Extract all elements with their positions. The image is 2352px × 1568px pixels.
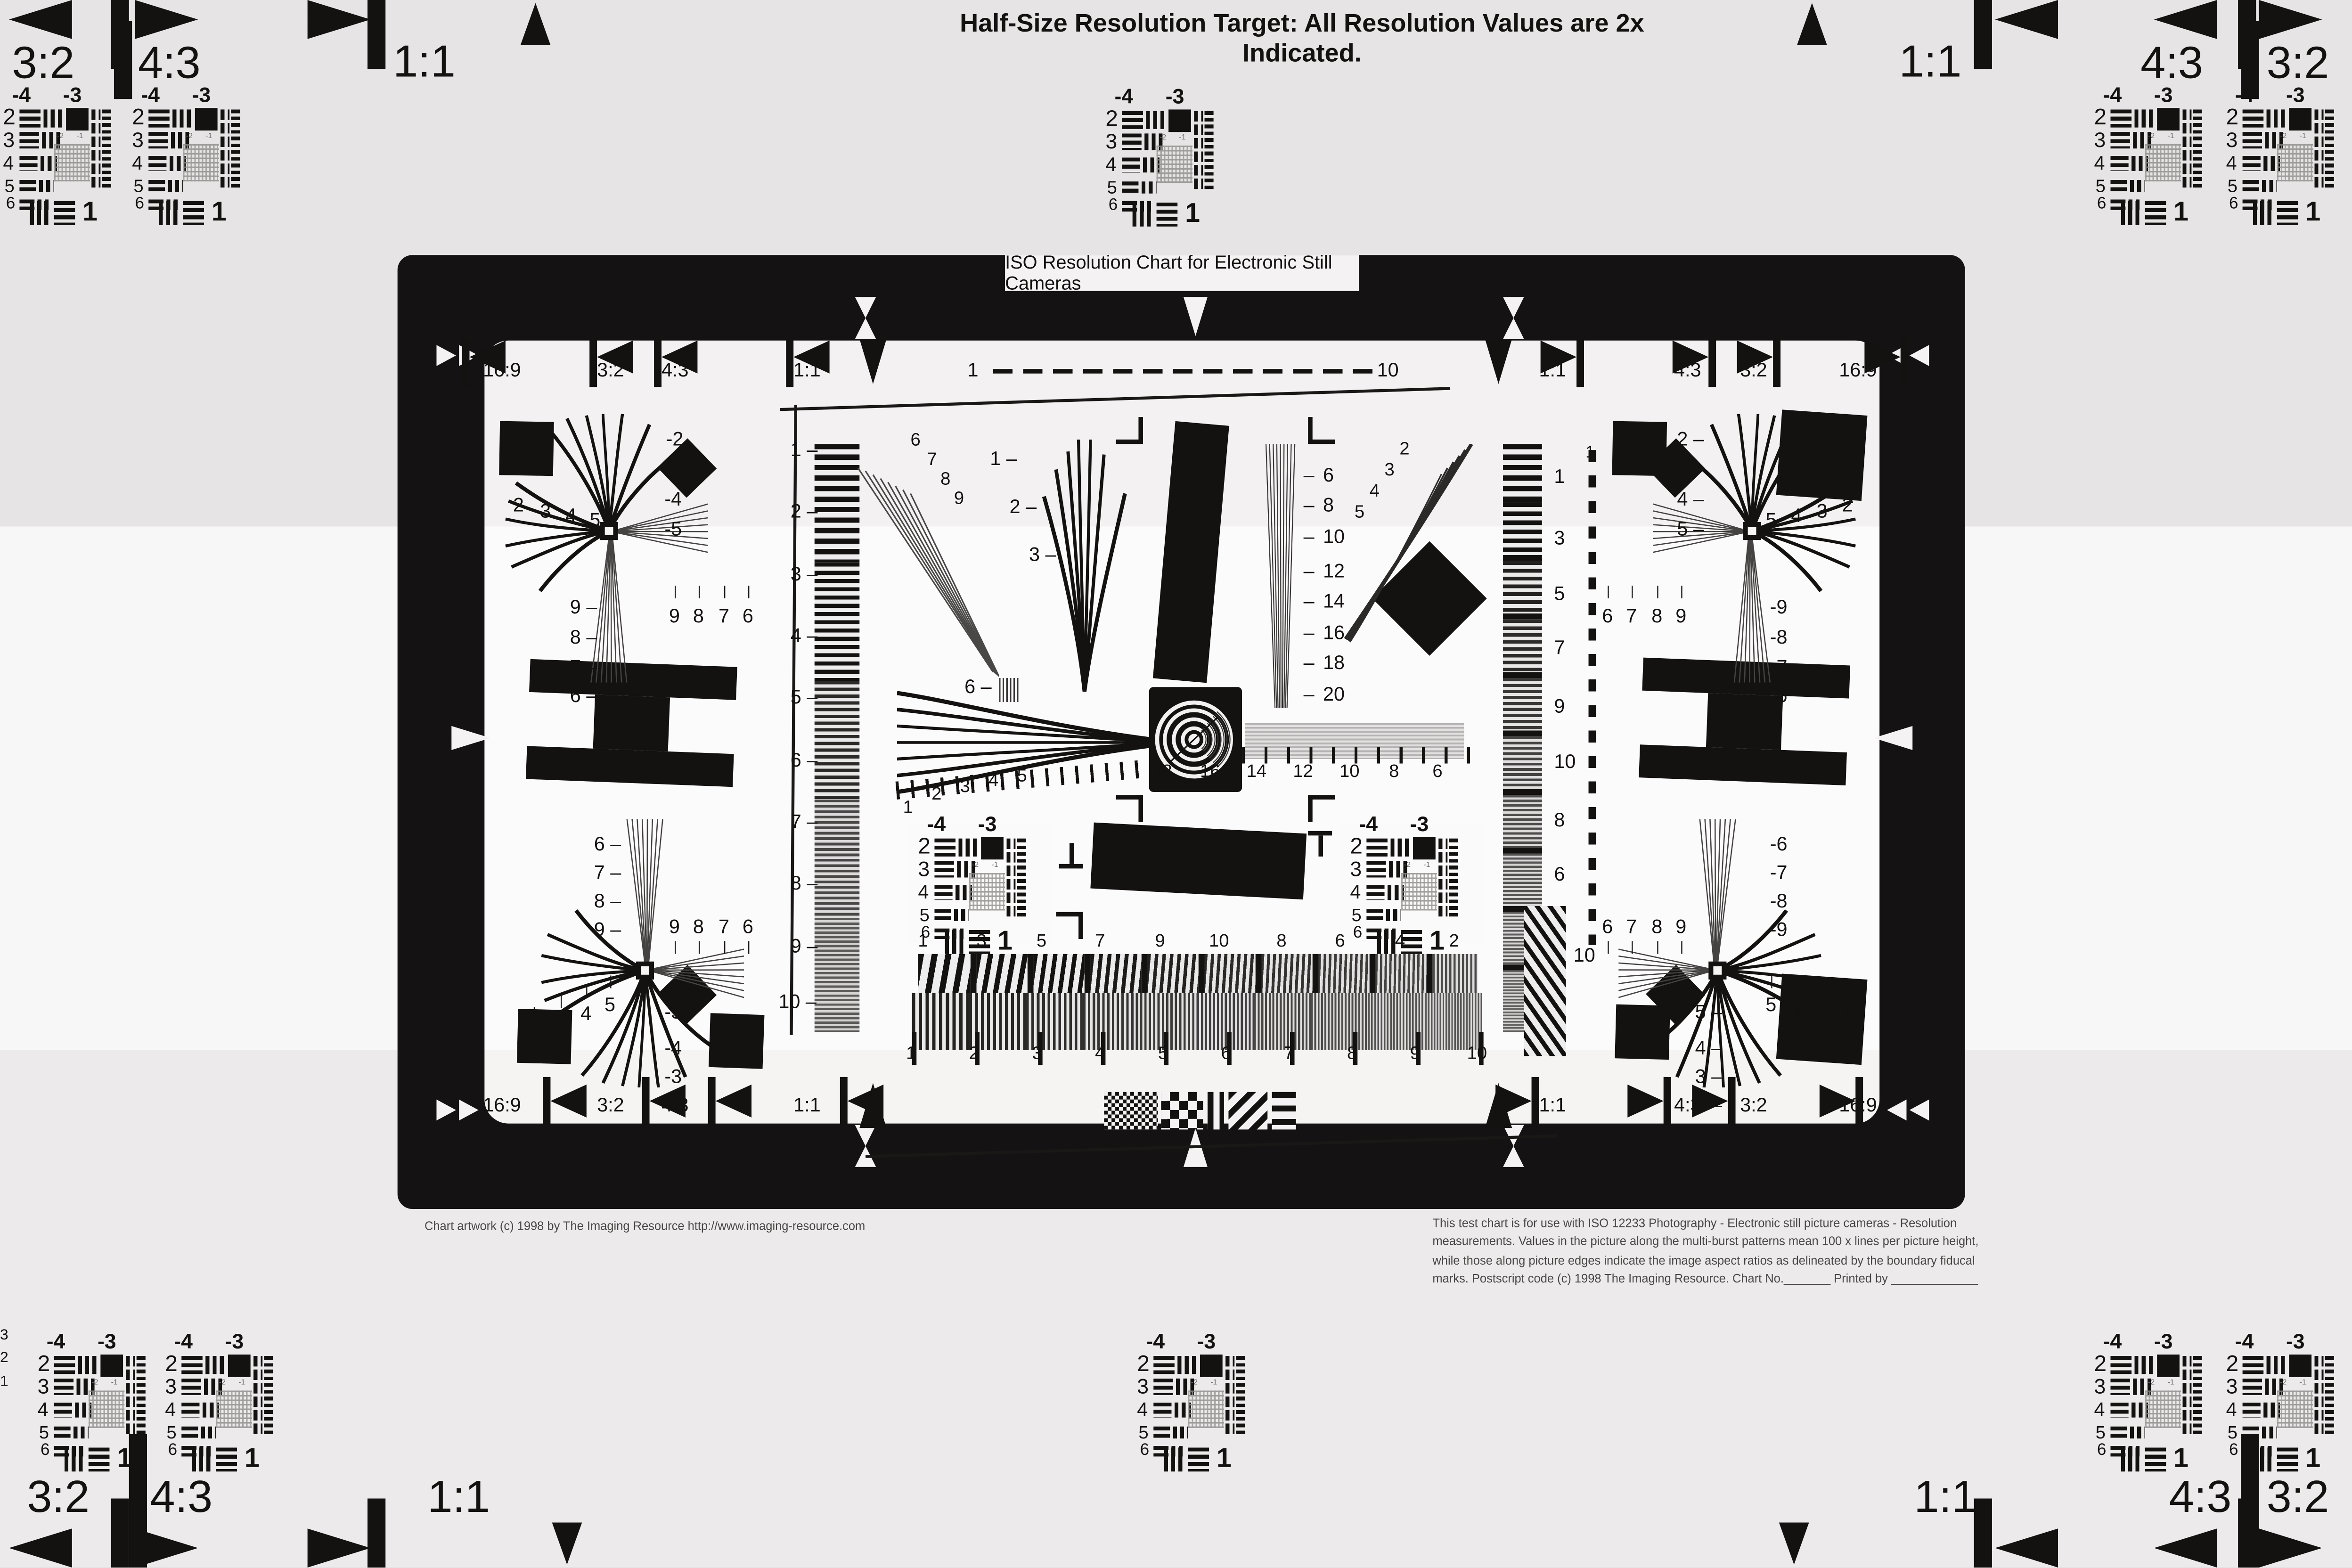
wedge-frequency-label: 9 <box>669 606 680 625</box>
hbar-pattern <box>137 1356 146 1366</box>
stop-label: -4 <box>141 84 160 105</box>
hbar-pattern <box>2325 109 2334 120</box>
nested-stop-label: -2 <box>186 133 193 141</box>
vbar-pattern <box>2314 137 2323 147</box>
scale-number: 18 <box>1323 653 1345 672</box>
hbar-pattern <box>231 123 240 133</box>
ruler-number: 2 – <box>791 501 818 520</box>
hbar-pattern <box>264 1423 273 1434</box>
hbar-pattern <box>2325 137 2334 147</box>
vbar-pattern <box>954 909 969 921</box>
burst-number: 9 <box>1410 1044 1420 1062</box>
hbar-pattern <box>934 861 954 877</box>
frame-bowtie <box>855 1125 876 1146</box>
edge-label: 3:2 <box>1740 1095 1767 1114</box>
vbar-pattern <box>2182 1423 2191 1434</box>
diagonal-stripes-mark <box>1228 1092 1267 1130</box>
wedge-frequency-label: -9 <box>1770 920 1788 939</box>
row-number: 4 <box>1350 882 1361 901</box>
hbar-pattern <box>148 156 166 171</box>
vbar-pattern <box>2314 1370 2323 1380</box>
aspect-ratio-label: 1:1 <box>1914 1476 1976 1521</box>
row-number: 4 <box>38 1399 49 1419</box>
hbar-pattern <box>2110 1379 2130 1395</box>
hbar-pattern <box>1366 909 1383 921</box>
vbar-pattern <box>2314 1410 2323 1421</box>
fine-checkerboard <box>1104 1092 1158 1130</box>
partial-glyph: 2 <box>0 1352 8 1367</box>
vbar-pattern <box>1225 1370 1234 1380</box>
wedge-frequency-label: -9 <box>1770 597 1788 616</box>
down-triangle-fiducial <box>552 1522 582 1564</box>
frame-bowtie <box>1503 1146 1524 1167</box>
vbar-pattern <box>1006 879 1015 890</box>
vbar-pattern <box>2253 201 2272 225</box>
vbar-pattern <box>1438 866 1447 876</box>
vbar-pattern <box>1142 181 1157 193</box>
edge-marker-triangle <box>1495 1085 1531 1118</box>
fiducial-triangle <box>308 1528 371 1568</box>
row-number: 3 <box>2094 129 2106 150</box>
mini-resolution-chart: -4-3 23456 -2-1 1 <box>2094 1355 2214 1475</box>
row-number: 6 <box>6 196 16 213</box>
wedge-frequency-label: 3 <box>1816 1014 1827 1033</box>
row-number: 5 <box>39 1423 49 1441</box>
vbar-pattern <box>2182 163 2191 174</box>
nested-stop-label: -2 <box>2280 133 2287 141</box>
big-one-label: 1 <box>1185 198 1200 229</box>
vbar-pattern <box>1438 839 1447 849</box>
hbar-pattern <box>1017 839 1026 849</box>
frame-bowtie <box>1503 318 1524 339</box>
scale-number: 6 <box>1432 762 1442 780</box>
stop-label: -4 <box>47 1331 65 1352</box>
footer-line: marks. Postscript code (c) 1998 The Imag… <box>1432 1271 1987 1289</box>
ruler-number: 2 – <box>1010 497 1037 516</box>
aspect-ratio-label: 3:2 <box>12 42 74 87</box>
vbar-pattern <box>2182 137 2191 147</box>
row-number: 2 <box>2226 1353 2239 1376</box>
aspect-ratio-label: 4:3 <box>2140 42 2203 87</box>
up-triangle-fiducial <box>521 3 551 45</box>
hbar-pattern <box>2325 1370 2334 1380</box>
hbar-pattern <box>102 137 111 147</box>
footer-line: measurements. Values in the picture alon… <box>1432 1233 1987 1252</box>
ruler-number: 9 – <box>791 936 818 955</box>
hbar-pattern <box>2193 1423 2202 1434</box>
corner-fiducial-triangle <box>2259 1528 2322 1568</box>
wedge-frequency-label: 8 – <box>570 627 597 646</box>
vbar-pattern <box>1194 111 1203 122</box>
wedge-frequency-label: | <box>697 585 701 599</box>
vbar-pattern <box>2130 1427 2145 1438</box>
scale-number: 8 <box>1323 495 1334 514</box>
wedge-frequency-label: 6 – <box>570 686 597 705</box>
edge-marker-bar <box>786 339 793 387</box>
edge-marker-triangle <box>550 1085 586 1118</box>
nested-stop-label: -1 <box>2167 1380 2174 1388</box>
wedge-frequency-label: 7 – <box>594 863 621 882</box>
hbar-pattern <box>1205 152 1214 162</box>
wedge-frequency-label: 3 <box>555 1014 566 1033</box>
vertical-bars-mark <box>1208 1092 1224 1130</box>
hbar-pattern <box>2325 163 2334 174</box>
ruler-number: 1 <box>1585 446 1595 462</box>
hbar-pattern <box>1122 111 1143 129</box>
frame-corner-arrow <box>436 1100 456 1121</box>
aspect-ratio-label: 4:3 <box>2169 1476 2232 1521</box>
ruler-number: 5 – <box>791 687 818 706</box>
ruler-number: 3 – <box>791 564 818 583</box>
row-number: 3 <box>38 1375 49 1396</box>
hbar-pattern <box>1153 1356 1175 1374</box>
wedge-frequency-label: 4 – <box>1677 489 1704 508</box>
edge-label: 1:1 <box>793 1095 821 1114</box>
row-number: 6 <box>41 1443 50 1460</box>
nested-stop-label: -1 <box>2300 133 2306 141</box>
vbar-pattern <box>1225 1383 1234 1393</box>
stop-label: -4 <box>12 84 31 105</box>
scale-number: – <box>1304 526 1315 546</box>
hbar-pattern <box>1236 1370 1245 1380</box>
hbar-pattern <box>2325 1423 2334 1434</box>
wedge-frequency-label: 5 <box>604 995 615 1014</box>
nested-mini-chart <box>1188 1390 1224 1428</box>
burst-number: 3 <box>1032 1044 1042 1062</box>
edge-label: 3:2 <box>597 360 624 379</box>
fiducial-triangle <box>1995 0 2058 39</box>
hbar-pattern <box>2193 1383 2202 1393</box>
scale-number: 2 <box>1399 440 1409 457</box>
row-number: 5 <box>2096 177 2106 195</box>
row-number: 5 <box>1107 179 1117 196</box>
left-multiburst-column <box>815 444 860 1032</box>
scale-number: – <box>1304 653 1315 672</box>
scale-number: 12 <box>1293 762 1313 780</box>
corner-bracket <box>1308 795 1335 822</box>
hbar-pattern <box>1366 861 1386 877</box>
edge-marker-bar <box>1708 339 1716 387</box>
row-number: 3 <box>918 858 930 879</box>
hbar-pattern <box>1017 866 1026 876</box>
partial-glyph: 1 <box>0 1375 8 1390</box>
hbar-pattern <box>264 1410 273 1421</box>
big-one-label: 1 <box>212 196 227 228</box>
wedge-frequency-label: -5 <box>664 519 682 539</box>
corner-bracket <box>1116 417 1143 444</box>
wedge-frequency-label: 7 <box>1626 916 1637 936</box>
hbar-pattern <box>1122 157 1140 172</box>
wedge-frequency-label: | <box>747 585 750 599</box>
resolution-chart-photo: Half-Size Resolution Target: All Resolut… <box>0 0 2352 1568</box>
edge-marker-bar <box>462 339 470 387</box>
frame-bowtie <box>1503 297 1524 318</box>
hbar-pattern <box>54 1427 71 1438</box>
center-vertical-wedge-fan <box>1041 440 1128 694</box>
hbar-pattern <box>2110 109 2131 127</box>
vbar-pattern <box>2134 109 2154 127</box>
edge-label: 4:3 <box>661 360 689 379</box>
hbar-pattern <box>1205 138 1214 148</box>
wedge-frequency-label: | <box>1680 585 1683 599</box>
vbar-pattern <box>2182 1356 2191 1366</box>
hbar-pattern <box>137 1383 146 1393</box>
nested-stop-label: -2 <box>2148 1380 2155 1388</box>
ruler-number: 6 – <box>791 750 818 769</box>
wedge-frequency-label: 8 <box>693 916 704 936</box>
vbar-pattern <box>1438 879 1447 890</box>
nested-mini-chart <box>54 144 90 182</box>
black-square <box>2157 108 2180 131</box>
vbar-pattern <box>126 1423 135 1434</box>
black-square <box>228 1355 251 1377</box>
hbar-pattern <box>54 1356 75 1374</box>
stop-label: -3 <box>2286 1331 2305 1352</box>
stop-label: -3 <box>2154 1331 2173 1352</box>
multiburst-band-coarse <box>918 954 1478 993</box>
big-one-label: 1 <box>2173 196 2189 228</box>
fiducial-bar <box>1974 0 1992 69</box>
wedge-frequency-label: | <box>1770 975 1773 988</box>
hbar-pattern <box>89 1447 110 1471</box>
wedge-cross-top-left <box>504 414 708 683</box>
scale-number: 14 <box>1247 762 1267 780</box>
vbar-pattern <box>2134 1356 2154 1374</box>
stop-label: -3 <box>63 84 82 105</box>
fiducial-bar <box>367 0 385 69</box>
row-number: 5 <box>166 1423 176 1441</box>
vbar-pattern <box>1225 1423 1234 1434</box>
vbar-pattern <box>1177 1356 1197 1374</box>
nested-mini-chart <box>216 1390 252 1428</box>
hbar-pattern <box>1449 852 1458 862</box>
vbar-pattern <box>2314 1423 2323 1434</box>
vbar-pattern <box>2182 109 2191 120</box>
vbar-pattern <box>126 1396 135 1407</box>
wedge-frequency-label: 7 <box>1626 606 1637 625</box>
edge-marker-bar <box>654 339 661 387</box>
corner-fiducial-triangle <box>9 0 72 39</box>
nested-stop-label: -1 <box>1210 1380 1217 1388</box>
wedge-frequency-label: | <box>1680 940 1683 954</box>
vbar-pattern <box>2130 180 2145 192</box>
row-number: 4 <box>2094 1399 2105 1419</box>
wedge-frequency-label: | <box>560 995 563 1008</box>
row-number: 2 <box>1350 835 1363 858</box>
fiducial-bar <box>1974 1499 1992 1568</box>
wedge-frequency-label: | <box>532 1006 536 1020</box>
hbar-pattern <box>2110 156 2128 171</box>
nested-stop-label: -1 <box>76 133 83 141</box>
row-number: 6 <box>1353 925 1363 942</box>
vbar-pattern <box>2182 177 2191 188</box>
stop-label: -4 <box>1114 85 1133 106</box>
vbar-pattern <box>126 1383 135 1393</box>
burst-number: 6 <box>1335 931 1345 949</box>
vbar-pattern <box>91 137 100 147</box>
hbar-pattern <box>2325 1410 2334 1421</box>
row-number: 5 <box>2228 177 2238 195</box>
row-number: 3 <box>3 129 15 150</box>
edge-label: 16:9 <box>483 1095 521 1114</box>
hbar-pattern <box>1449 839 1458 849</box>
hbar-pattern <box>1236 1423 1245 1434</box>
hbar-pattern <box>2325 123 2334 133</box>
hbar-pattern <box>2243 109 2264 127</box>
hbar-pattern <box>181 1403 199 1418</box>
vbar-pattern <box>65 1447 84 1471</box>
vbar-pattern <box>1438 852 1447 862</box>
diagonal-stripe-column <box>1524 906 1566 1056</box>
tee-mark <box>1308 831 1332 857</box>
vbar-pattern <box>1006 839 1015 849</box>
aspect-ratio-label: 1:1 <box>427 1476 490 1521</box>
hbar-pattern <box>102 123 111 133</box>
scale-number: – <box>1304 561 1315 580</box>
hbar-pattern <box>1205 165 1214 175</box>
fiducial-bar <box>367 1499 385 1568</box>
vbar-pattern <box>159 201 178 225</box>
frame-notch-top-center <box>1184 297 1208 336</box>
hbar-pattern <box>1122 133 1141 150</box>
nested-stop-label: -2 <box>219 1380 226 1388</box>
row-number: 5 <box>1138 1423 1148 1441</box>
hbar-pattern <box>231 163 240 174</box>
burst-number: 1 <box>906 1044 916 1062</box>
wedge-frequency-label: 6 <box>743 916 753 936</box>
frame-corner-arrow <box>436 345 456 366</box>
hbar-pattern <box>2325 177 2334 188</box>
hbar-pattern <box>264 1370 273 1380</box>
wedge-frequency-label: -5 <box>664 1002 682 1021</box>
hyperbolic-wedge-cross <box>1653 414 1857 683</box>
wedge-frequency-label: | <box>1656 940 1659 954</box>
wedge-frequency-label: -4 <box>664 489 682 508</box>
row-number: 2 <box>1137 1353 1150 1376</box>
aspect-ratio-label: 3:2 <box>2267 42 2329 87</box>
chart-title-tab: ISO Resolution Chart for Electronic Stil… <box>1005 255 1359 291</box>
wedge-frequency-label: -7 <box>1770 657 1788 676</box>
vbar-pattern <box>2182 1410 2191 1421</box>
wedge-frequency-label: -3 <box>666 459 684 478</box>
ruler-number: 8 – <box>791 873 818 892</box>
scale-number: 18 <box>1152 762 1172 780</box>
vbar-pattern <box>2267 1356 2286 1374</box>
hbar-pattern <box>1122 181 1138 193</box>
edge-marker-triangle <box>716 1085 751 1118</box>
vbar-pattern <box>2262 1427 2277 1438</box>
mini-resolution-chart: -4-3 23456 -2-1 1 <box>1105 109 1225 229</box>
frame-corner-arrow <box>459 1100 478 1121</box>
hbar-pattern <box>1236 1356 1245 1366</box>
burst-number: 5 <box>1158 1044 1168 1062</box>
scale-number: 5 <box>1017 767 1027 784</box>
hbar-pattern <box>102 177 111 188</box>
row-number: 3 <box>2094 1375 2106 1396</box>
big-one-label: 1 <box>1217 1443 1232 1475</box>
vbar-pattern <box>220 150 229 160</box>
wedge-frequency-label: 2 – <box>1695 1095 1723 1114</box>
stop-label: -3 <box>2154 84 2173 105</box>
dashed-scale-line <box>993 369 1377 373</box>
stop-label: -3 <box>1410 813 1429 834</box>
burst-number: 10 <box>1209 931 1229 949</box>
hbar-pattern <box>1205 111 1214 122</box>
burst-number: 10 <box>1467 1044 1487 1062</box>
wedge-frequency-label: 6 <box>1602 916 1613 936</box>
vbar-pattern <box>1146 111 1165 129</box>
vbar-pattern <box>220 109 229 120</box>
vbar-pattern <box>1386 909 1401 921</box>
vbar-pattern <box>1225 1356 1234 1366</box>
stop-label: -3 <box>2286 84 2305 105</box>
vbar-pattern <box>1438 892 1447 903</box>
corner-fiducial-triangle <box>2154 0 2217 39</box>
stop-label: -4 <box>2103 1331 2122 1352</box>
wedge-frequency-label: 8 <box>693 606 704 625</box>
burst-number: 5 <box>1037 931 1046 949</box>
wedge-frequency-label: 9 – <box>570 597 597 616</box>
row-number: 4 <box>1105 155 1116 174</box>
row-number: 2 <box>3 106 16 129</box>
mini-resolution-chart: -4-3 23456 -2-1 1 <box>2226 1355 2346 1475</box>
vbar-pattern <box>253 1396 262 1407</box>
row-number: 6 <box>1140 1443 1150 1460</box>
wedge-frequency-label: 4 <box>1791 1004 1802 1023</box>
scale-number: 9 <box>954 489 964 507</box>
mini-resolution-chart: -4-3 23456 -2-1 1 <box>1137 1355 1257 1475</box>
nested-stop-label: -2 <box>2148 133 2155 141</box>
scale-number: 20 <box>1323 684 1345 703</box>
wedge-frequency-label: | <box>1796 984 1799 998</box>
scale-number: 2 <box>931 784 941 802</box>
vbar-pattern <box>1164 1447 1184 1471</box>
apex-up-triangle <box>859 1083 886 1128</box>
vbar-pattern <box>126 1370 135 1380</box>
wedge-frequency-label: | <box>1821 995 1824 1008</box>
hbar-pattern <box>1449 906 1458 916</box>
vbar-pattern <box>253 1370 262 1380</box>
hbar-pattern <box>54 201 75 225</box>
hbar-pattern <box>181 1379 201 1395</box>
nested-mini-chart <box>2145 1390 2181 1428</box>
hbar-pattern <box>2193 1370 2202 1380</box>
stop-label: -4 <box>1146 1331 1165 1352</box>
stop-label: -4 <box>2235 1331 2254 1352</box>
edge-label: 1:1 <box>1539 1095 1566 1114</box>
hbar-pattern <box>148 109 170 127</box>
hbar-pattern <box>137 1410 146 1421</box>
hbar-pattern <box>183 201 204 225</box>
coarse-checkerboard <box>1161 1092 1203 1130</box>
stop-label: -3 <box>978 813 997 834</box>
edge-label: 16:9 <box>483 360 521 379</box>
vbar-pattern <box>2121 1447 2140 1471</box>
black-square <box>1200 1355 1223 1377</box>
row-number: 4 <box>918 882 929 901</box>
vbar-pattern <box>2314 150 2323 160</box>
black-square <box>2289 1355 2311 1377</box>
row-number: 4 <box>1137 1399 1148 1419</box>
row-number: 3 <box>1137 1375 1149 1396</box>
hbar-pattern <box>2243 1356 2264 1374</box>
black-square <box>66 108 89 131</box>
vbar-pattern <box>1194 165 1203 175</box>
hbar-pattern <box>19 132 39 148</box>
stop-label: -3 <box>1166 85 1184 106</box>
wedge-frequency-label: 6 <box>743 606 753 625</box>
nested-mini-chart <box>969 873 1005 911</box>
